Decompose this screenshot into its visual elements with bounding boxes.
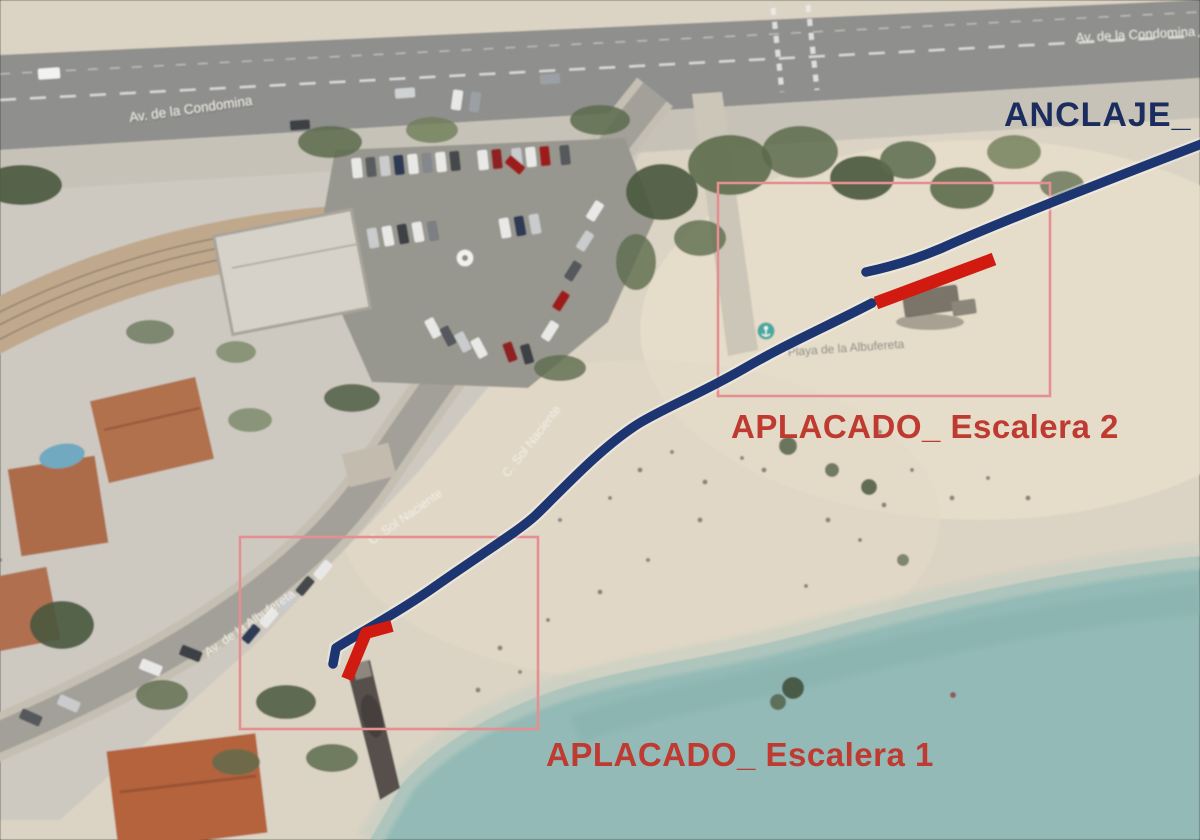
building-roof-terracotta — [8, 456, 109, 557]
beach-poi-icon — [758, 323, 775, 340]
label-aplacado-escalera-1: APLACADO_ Escalera 1 — [546, 736, 934, 773]
parking-poi-icon — [456, 249, 474, 267]
label-aplacado-escalera-2: APLACADO_ Escalera 2 — [731, 408, 1119, 445]
aerial-annotated-map: Av. de la Condomina Av. de la Condomina … — [0, 0, 1200, 840]
building-roof-terracotta — [106, 733, 267, 840]
map-canvas: Av. de la Condomina Av. de la Condomina … — [0, 0, 1200, 840]
label-anclaje: ANCLAJE_ — [1004, 96, 1192, 134]
